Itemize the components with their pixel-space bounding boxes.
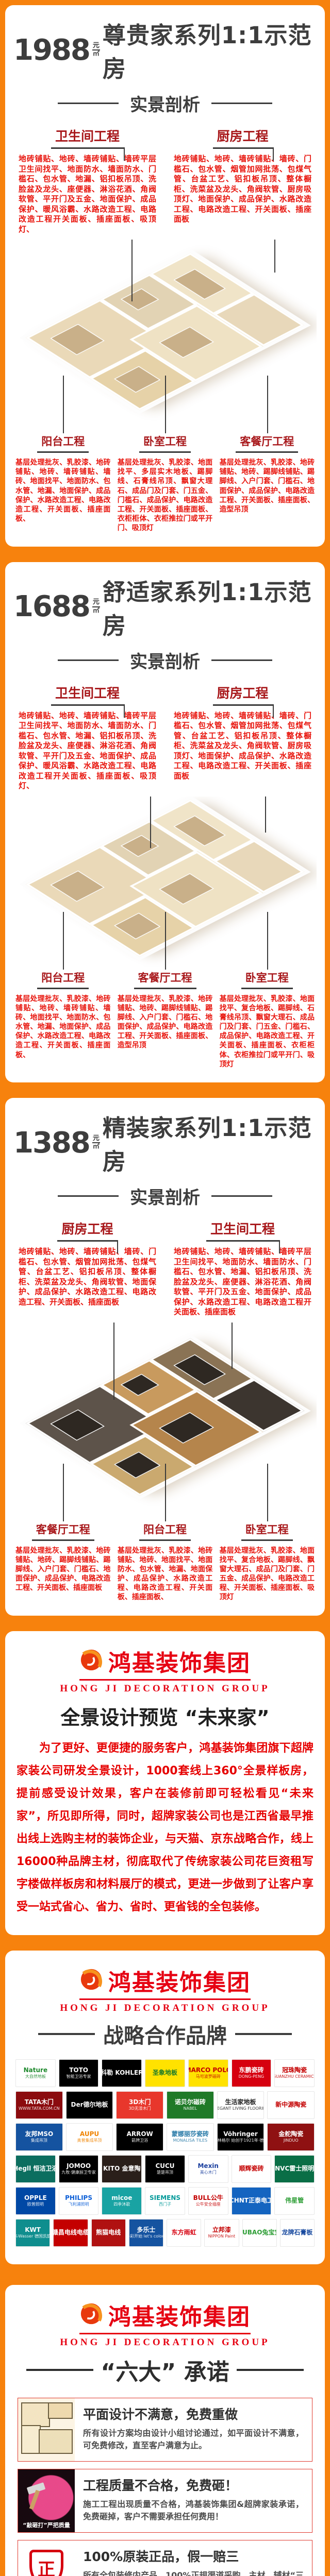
spec-columns-bottom: 阳台工程 基层处理批灰、乳胶漆、地砖铺贴、地砖、墙砖铺贴、墙砖、地面找平、地面防… xyxy=(13,433,317,533)
spec-columns-top: 厨房工程 地砖铺贴、地砖、墙砖铺贴、墙砖、门槛石、包水管、烟管加网批荡、包煤气管… xyxy=(13,1219,317,1317)
brand-logo-row: TATA木门WWW.TATA.COM.CN Der德尔地板 3D木门3D无漆木门… xyxy=(15,2091,315,2119)
brand-logo-nabel: 诺贝尔磁砖NABEL xyxy=(167,2091,214,2119)
zheng-shield-icon: 正 xyxy=(29,2550,63,2576)
brand-name: 鸿基装饰集团 xyxy=(108,2298,251,2331)
price-unit: 元㎡ xyxy=(92,599,100,615)
price-unit: 元㎡ xyxy=(92,1135,100,1151)
spec-column-living: 客餐厅工程 基层处理批灰、乳胶漆、地砖铺贴、地砖、踢脚线铺贴、踢脚线、入户门套、… xyxy=(15,1521,110,1602)
column-header-bathroom: 卫生间工程 xyxy=(206,1219,279,1242)
section-1688-title: 1688 元㎡ 舒适家系列1:1示范房 xyxy=(13,573,317,640)
brand-logo-row: Nature大自然地板 TOTO智能卫浴专家 科勒 KOHLER 圣象地板 MA… xyxy=(15,2059,315,2087)
brand-logo-nippon: 立邦漆NIPPON Paint xyxy=(204,2219,239,2247)
genuine-badge-image: 正 正品保障 xyxy=(18,2540,75,2576)
column-header-bathroom: 卫生间工程 xyxy=(51,126,124,149)
promise-genuine: 正 正品保障 100%原装正品，假一赔三 所有全包装修内产品，100%正规渠道采… xyxy=(18,2540,312,2576)
brand-name-en: HONG JI DECORATION GROUP xyxy=(60,2337,270,2348)
spec-text-bathroom: 地砖铺贴、地砖、墙砖铺贴、墙砖平层卫生间找平、地面防水、墙面防水、门槛石、包水管… xyxy=(19,154,156,234)
promise-title: 工程质量不合格，免费砸！ xyxy=(83,2476,304,2494)
price-1688: 1688 xyxy=(13,590,90,623)
brand-name-en: HONG JI DECORATION GROUP xyxy=(60,2003,270,2014)
brand-logo-monalisa: 蒙娜丽莎瓷砖MONALISA TILES xyxy=(167,2123,214,2151)
brand-logo-3d-door: 3D木门3D无漆木门 xyxy=(116,2091,163,2119)
hongji-logo: 鸿基装饰集团 HONG JI DECORATION GROUP xyxy=(13,2298,317,2348)
column-header-living: 客餐厅工程 xyxy=(134,970,196,989)
brand-logo-row: KWTK-Wasser 德国凯旋 赣昌电线电缆 熊猫电线 多乐士多彩开始 let… xyxy=(15,2219,315,2247)
section-subtitle: 实景剖析 xyxy=(13,91,317,116)
brand-logo-weixing: 伟星管 xyxy=(274,2187,315,2215)
brand-logo-kohler: 科勒 KOHLER xyxy=(102,2059,142,2087)
hongji-logo: 鸿基装饰集团 HONG JI DECORATION GROUP xyxy=(13,1645,317,1694)
spec-column-bathroom: 卫生间工程 地砖铺贴、地砖、墙砖铺贴、墙砖平层卫生间找平、地面防水、墙面防水、门… xyxy=(19,126,156,234)
annotation-line xyxy=(274,240,275,273)
brand-logo-cucu: CUCU楚楚吊顶 xyxy=(145,2155,185,2183)
brand-logo-kwt: KWTK-Wasser 德国凯旋 xyxy=(15,2219,50,2247)
spec-column-bedroom: 卧室工程 基层处理批灰、乳胶漆、地面找平、复合地板、踢脚线、石膏线吊顶、飘窗大理… xyxy=(220,970,315,1070)
brand-logo-chnt: CHNT正泰电工 xyxy=(232,2187,272,2215)
brand-logo-arrow: ARROW箭牌卫浴 xyxy=(116,2123,163,2151)
promise-demolish: “敲砸打”严把质量 工程质量不合格，免费砸！ 施工工程出现质量不合格，鸿基装饰集… xyxy=(18,2469,312,2533)
brand-logo-nature: Nature大自然地板 xyxy=(15,2059,56,2087)
spec-column-kitchen: 厨房工程 地砖铺贴、地砖、墙砖铺贴、墙砖、门槛石、包水管、烟管加网批荡、包煤气管… xyxy=(174,683,311,791)
section-panorama: 鸿基装饰集团 HONG JI DECORATION GROUP 全景设计预览 “… xyxy=(5,1631,325,1935)
column-header-balcony: 阳台工程 xyxy=(37,970,89,989)
brand-logo-elegant-living: 生活家地板ELEGANT LIVING FLOORING xyxy=(217,2091,265,2119)
annotation-line xyxy=(265,796,266,833)
spec-column-living: 客餐厅工程 基层处理批灰、乳胶漆、地砖铺贴、地砖、踢脚线铺贴、踢脚线、入户门套、… xyxy=(220,433,315,533)
promise-body: 所有全包装修内产品，100%正规渠道采购，主材、辅材“三证”齐全，消费者可以通过… xyxy=(83,2569,304,2576)
panorama-title: 全景设计预览 “未来家” xyxy=(13,1702,317,1730)
section-1388: 1388 元㎡ 精装家系列1:1示范房 实景剖析 厨房工程 地砖铺贴、地砖、墙砖… xyxy=(5,1098,325,1616)
promise-title: 100%原装正品，假一赔三 xyxy=(83,2547,304,2565)
brand-logo-guanzhu: 冠珠陶瓷GUANZHU CERAMICS xyxy=(274,2059,315,2087)
spec-columns-top: 卫生间工程 地砖铺贴、地砖、墙砖铺贴、墙砖平层卫生间找平、地面防水、墙面防水、门… xyxy=(13,126,317,234)
brand-logo-row: 友邦MSO集成吊顶 AUPU奥普集成吊顶 ARROW箭牌卫浴 蒙娜丽莎瓷砖MON… xyxy=(15,2123,315,2151)
brand-logo-der: Der德尔地板 xyxy=(66,2091,113,2119)
brand-logo-dulux: 多乐士多彩开始 let's colour xyxy=(129,2219,163,2247)
brand-logo-jomoo: JOMOO九牧·健康厨卫专家 xyxy=(59,2155,99,2183)
column-header-kitchen: 厨房工程 xyxy=(57,1219,117,1242)
price-unit: 元㎡ xyxy=(92,42,100,58)
spec-columns-bottom: 客餐厅工程 基层处理批灰、乳胶漆、地砖铺贴、地砖、踢脚线铺贴、踢脚线、入户门套、… xyxy=(13,1521,317,1602)
column-header-living: 客餐厅工程 xyxy=(236,433,298,453)
brand-logo-bull: BULL公牛公牛安全插座 xyxy=(188,2187,228,2215)
spec-column-kitchen: 厨房工程 地砖铺贴、地砖、墙砖铺贴、墙砖、门槛石、包水管、烟管加网批荡、包煤气管… xyxy=(19,1219,156,1317)
brand-logo-vohringer: Vöhringer菲林格尔 始创于1921年·德国 xyxy=(217,2123,265,2151)
brand-logo-kito: KITO 金意陶 xyxy=(102,2155,142,2183)
section-subtitle: 实景剖析 xyxy=(13,1183,317,1209)
column-header-bathroom: 卫生间工程 xyxy=(51,683,124,706)
brand-logo-opple: OPPLE欧普照明 xyxy=(15,2187,56,2215)
spec-column-kitchen: 厨房工程 地砖铺贴、地砖、墙砖铺贴、墙砖、门槛石、包水管、烟管加网批荡、包煤气管… xyxy=(174,126,311,234)
hongji-logo: 鸿基装饰集团 HONG JI DECORATION GROUP xyxy=(13,1964,317,2014)
spec-column-bedroom: 卧室工程 基层处理批灰、乳胶漆、地面找平、多层实木地板、踢脚线、石膏线吊顶、飘窗… xyxy=(118,433,212,533)
spec-column-living: 客餐厅工程 基层处理批灰、乳胶漆、地砖铺贴、地砖、踢脚线铺贴、踢脚线、入户门套、… xyxy=(118,970,212,1070)
hongji-logo-icon xyxy=(79,1648,103,1674)
price-1388: 1388 xyxy=(13,1126,90,1160)
spec-columns-bottom: 阳台工程 基层处理批灰、乳胶漆、地砖铺贴、地砖、墙砖铺贴、墙砖、地面找平、地面防… xyxy=(13,970,317,1070)
brand-logo-panda-cable: 熊猫电线 xyxy=(91,2219,126,2247)
brand-logo-xinzhongyuan: 新中源陶瓷 xyxy=(267,2091,315,2119)
price-1988: 1988 xyxy=(13,33,90,67)
promise-title: 平面设计不满意，免费重做 xyxy=(83,2404,304,2423)
brand-logo-row: OPPLE欧普照明 PHILIPS飞利浦照明 micoe四季沐歌 SIEMENS… xyxy=(15,2187,315,2215)
column-header-balcony: 阳台工程 xyxy=(37,433,89,453)
hongji-logo-icon xyxy=(79,2302,103,2328)
brand-name-en: HONG JI DECORATION GROUP xyxy=(60,1683,270,1694)
brand-logo-row: Hegll 恒洁卫浴 JOMOO九牧·健康厨卫专家 KITO 金意陶 CUCU楚… xyxy=(15,2155,315,2183)
annotation-line xyxy=(113,1323,114,1400)
brand-logo-ganchang: 赣昌电线电缆 xyxy=(53,2219,88,2247)
brand-name: 鸿基装饰集团 xyxy=(108,1964,251,1997)
spec-columns-top: 卫生间工程 地砖铺贴、地砖、墙砖铺贴、墙砖平层卫生间找平、地面防水、墙面防水、门… xyxy=(13,683,317,791)
brand-logo-mso: 友邦MSO集成吊顶 xyxy=(15,2123,63,2151)
spec-column-bedroom: 卧室工程 基层处理批灰、乳胶漆、地面找平、复合地板、踢脚线、飘窗大理石、成品门及… xyxy=(220,1521,315,1602)
annotation-line xyxy=(232,1323,233,1369)
brand-logo-jinduo: 金舵陶瓷JINDUO xyxy=(267,2123,315,2151)
brand-logo-shengxiang: 圣象地板 xyxy=(145,2059,185,2087)
brand-logo-philips: PHILIPS飞利浦照明 xyxy=(59,2187,99,2215)
brand-logo-siemens: SIEMENS西门子 xyxy=(145,2187,185,2215)
hammer-quality-image: “敲砸打”严把质量 xyxy=(18,2469,75,2532)
brand-logo-tubao: TUBAO兔宝宝 xyxy=(242,2219,277,2247)
brand-logo-tata: TATA木门WWW.TATA.COM.CN xyxy=(15,2091,63,2119)
section-1388-title: 1388 元㎡ 精装家系列1:1示范房 xyxy=(13,1109,317,1176)
column-header-bedroom: 卧室工程 xyxy=(241,1521,293,1541)
section-promises: 鸿基装饰集团 HONG JI DECORATION GROUP “六大” 承诺 … xyxy=(5,2285,325,2576)
brand-logo-micoe: micoe四季沐歌 xyxy=(102,2187,142,2215)
section-1988-title: 1988 元㎡ 尊贵家系列1:1示范房 xyxy=(13,16,317,83)
spec-column-bathroom: 卫生间工程 地砖铺贴、地砖、墙砖铺贴、墙砖平层卫生间找平、地面防水、墙面防水、门… xyxy=(19,683,156,791)
promises-title: “六大” 承诺 xyxy=(13,2353,317,2386)
brand-logo-hegll: Hegll 恒洁卫浴 xyxy=(15,2155,56,2183)
spec-column-balcony: 阳台工程 基层处理批灰、乳胶漆、地砖铺贴、地砖、墙砖铺贴、墙砖、地面找平、地面防… xyxy=(15,433,110,533)
promise-redesign: 平面设计不满意，免费重做 所有设计方案均由设计小组讨论通过，如平面设计不满意，可… xyxy=(18,2398,312,2462)
hongji-logo-icon xyxy=(79,1968,103,1993)
spec-text-kitchen: 地砖铺贴、地砖、墙砖铺贴、墙砖、门槛石、包水管、烟管加网批荡、包煤气管、台盆工艺… xyxy=(174,154,311,225)
column-header-kitchen: 厨房工程 xyxy=(213,683,273,706)
column-header-bedroom: 卧室工程 xyxy=(139,433,191,453)
brand-logo-nvc: NVC雷士照明 xyxy=(274,2155,315,2183)
brand-logo-longpai: 龙牌石膏板 xyxy=(280,2219,315,2247)
promise-body: 施工工程出现质量不合格，鸿基装饰集团&超牌家装承诺，免费砸掉，客户不需要承担任何… xyxy=(83,2498,304,2524)
column-header-bedroom: 卧室工程 xyxy=(241,970,293,989)
partners-title: 战略合作品牌 xyxy=(13,2019,317,2049)
brand-logo-shunhui: 顺辉瓷砖 xyxy=(232,2155,272,2183)
promise-body: 所有设计方案均由设计小组讨论通过，如平面设计不满意，可免费修改，直至客户满意为止… xyxy=(83,2427,304,2453)
brand-logo-aupu: AUPU奥普集成吊顶 xyxy=(66,2123,113,2151)
brand-logo-mexin: Mexin美心木门 xyxy=(188,2155,228,2183)
spec-column-balcony: 阳台工程 基层处理批灰、乳胶漆、地砖铺贴、地砖、墙砖铺贴、墙砖、地面找平、地面防… xyxy=(15,970,110,1070)
annotation-line xyxy=(131,240,133,301)
section-1988: 1988 元㎡ 尊贵家系列1:1示范房 实景剖析 卫生间工程 地砖铺贴、地砖、墙… xyxy=(5,5,325,547)
brand-logo-toto: TOTO智能卫浴专家 xyxy=(59,2059,99,2087)
brand-logo-marcopolo: MARCO POLO马可波罗磁砖 xyxy=(188,2059,228,2087)
spec-column-bathroom: 卫生间工程 地砖铺贴、地砖、墙砖铺贴、墙砖平层卫生间找平、地面防水、墙面防水、门… xyxy=(174,1219,311,1317)
brand-logo-dongpeng: 东鹏瓷砖DONG-PENG xyxy=(232,2059,272,2087)
brand-logo-yuhong: 东方雨虹 xyxy=(167,2219,201,2247)
annotation-line xyxy=(150,796,151,848)
section-partners: 鸿基装饰集团 HONG JI DECORATION GROUP 战略合作品牌 N… xyxy=(5,1951,325,2264)
column-header-living: 客餐厅工程 xyxy=(32,1521,94,1541)
column-header-balcony: 阳台工程 xyxy=(139,1521,191,1541)
floorplan-thumbnail-image xyxy=(18,2398,75,2461)
panorama-paragraph: 为了更好、更便捷的服务客户，鸿基装饰集团旗下超牌家装公司研发全景设计，1000套… xyxy=(16,1737,313,1919)
section-1688: 1688 元㎡ 舒适家系列1:1示范房 实景剖析 卫生间工程 地砖铺贴、地砖、墙… xyxy=(5,562,325,1083)
column-header-kitchen: 厨房工程 xyxy=(213,126,273,149)
section-subtitle: 实景剖析 xyxy=(13,648,317,673)
spec-column-balcony: 阳台工程 基层处理批灰、乳胶漆、地砖铺贴、地砖、地面找平、地面防水、包水管、地漏… xyxy=(118,1521,212,1602)
brand-name: 鸿基装饰集团 xyxy=(108,1645,251,1677)
